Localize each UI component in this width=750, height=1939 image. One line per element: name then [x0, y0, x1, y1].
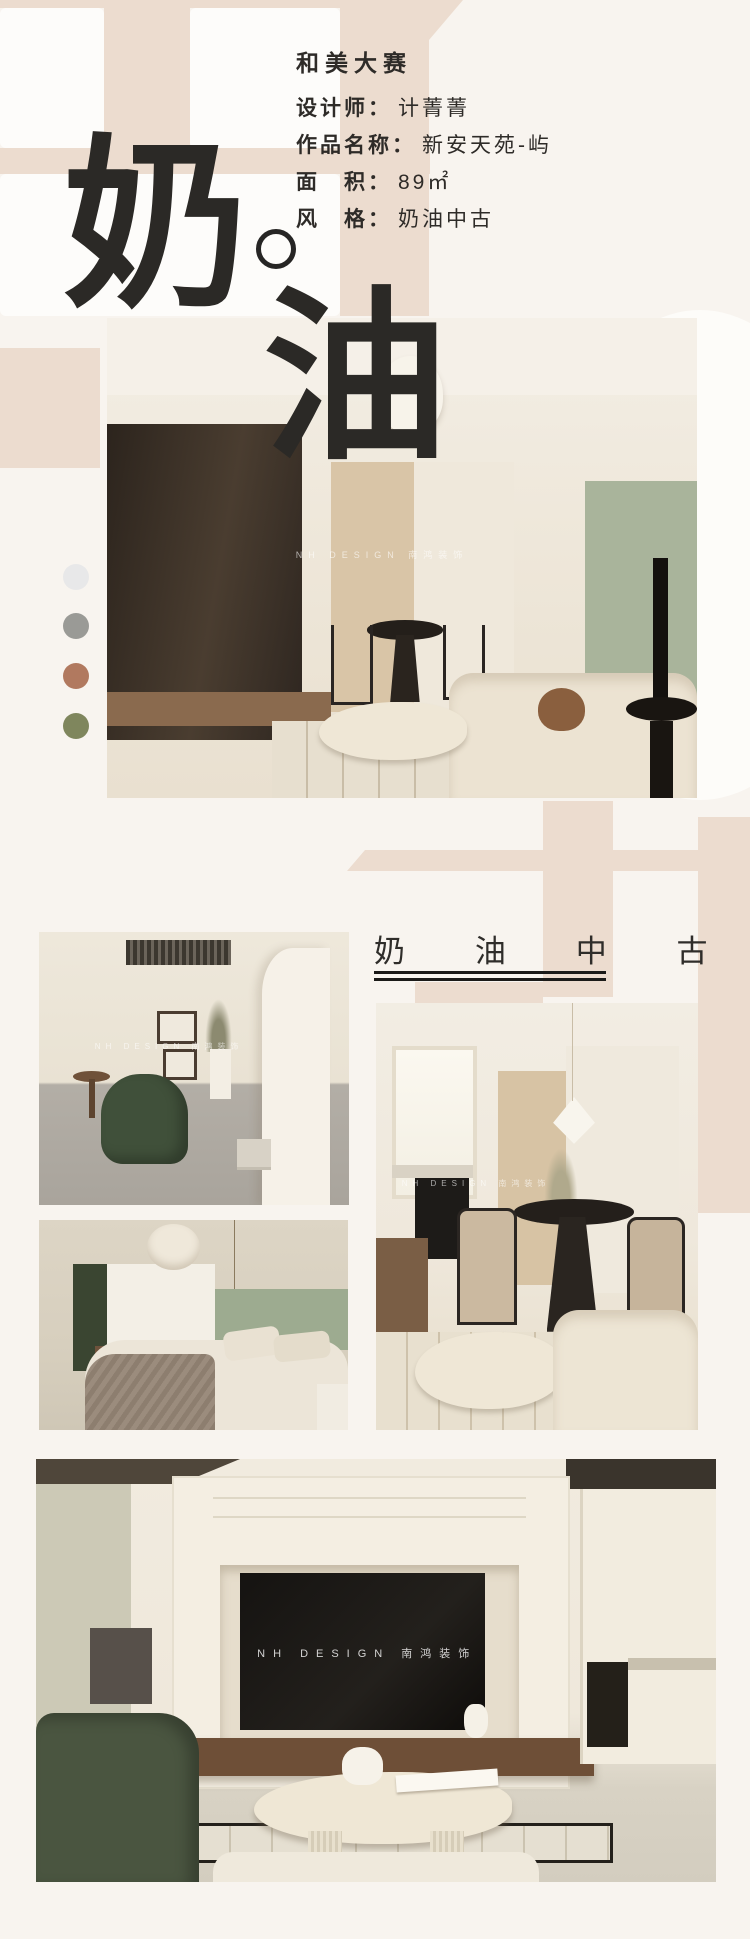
kitchen-counter [628, 1658, 716, 1671]
photo-watermark: NH DESIGN 南鸿装饰 [95, 1041, 244, 1052]
info-row-project: 作品名称： 新安天苑-屿 [296, 129, 552, 155]
photo-dining-area: NH DESIGN 南鸿装饰 [376, 1003, 698, 1430]
photo-watermark: NH DESIGN 南鸿装饰 [402, 1178, 551, 1189]
section-heading: 奶 油 中 古 [374, 926, 738, 971]
kitchen-oven [587, 1662, 628, 1747]
doorway-header [566, 1459, 716, 1489]
dining-chair [627, 1217, 685, 1317]
palette-swatch-terracotta [63, 663, 89, 689]
tv-watermark: NH DESIGN 南鸿装饰 [257, 1645, 477, 1661]
left-niche [90, 1628, 151, 1704]
bg-gu-right-strip [698, 817, 750, 1213]
palette-swatch-warm-gray [63, 613, 89, 639]
style-label: 风 格： [296, 203, 392, 233]
bg-left-block [0, 348, 100, 468]
table-leg [89, 1079, 95, 1117]
poster-page: 奶 油 和美大赛 设计师： 计菁菁 作品名称： 新安天苑-屿 面 积： 89㎡ … [0, 0, 750, 1939]
kidney-coffee-table [319, 702, 467, 760]
sage-green-wall [585, 481, 697, 697]
wall-frame [157, 1011, 197, 1044]
palette-swatch-light-gray [63, 564, 89, 590]
photo-hallway: NH DESIGN 南鸿装饰 [39, 932, 349, 1205]
photo-bedroom [39, 1220, 348, 1430]
hero-circle-mark [256, 229, 296, 269]
console-vase [464, 1704, 488, 1738]
heading-underline-top [374, 971, 606, 974]
dining-chair [457, 1208, 518, 1325]
wall-moulding [213, 1497, 526, 1518]
project-label: 作品名称： [296, 129, 416, 159]
green-lounge-chair [101, 1074, 188, 1164]
info-row-designer: 设计师： 计菁菁 [296, 92, 552, 118]
table-vase [342, 1747, 383, 1785]
kidney-coffee-table [415, 1332, 563, 1409]
walnut-console [172, 1738, 594, 1776]
floor-books [237, 1139, 271, 1166]
black-table-stem [650, 721, 674, 798]
info-row-area: 面 积： 89㎡ [296, 166, 552, 192]
tv-cabinet-wood [376, 1238, 428, 1332]
hero-title-top: 奶 [63, 138, 248, 314]
striped-throw [85, 1354, 215, 1430]
tufted-sofa [553, 1310, 698, 1430]
boucle-sofa-back [213, 1852, 539, 1882]
pendant-cord [572, 1003, 573, 1101]
style-value: 奶油中古 [398, 203, 494, 233]
table-flowers [543, 1144, 578, 1204]
competition-title: 和美大赛 [296, 44, 552, 78]
nightstand [317, 1384, 348, 1430]
curved-partition [262, 948, 330, 1205]
area-value: 89㎡ [398, 166, 451, 196]
green-sofa [36, 1713, 199, 1882]
designer-value: 计菁菁 [398, 92, 470, 122]
wall-planter [210, 1049, 232, 1098]
photo-tv-wall: NH DESIGN 南鸿装饰 [36, 1459, 716, 1882]
kitchen-counter [392, 1165, 473, 1178]
tv-screen: NH DESIGN 南鸿装饰 [240, 1573, 485, 1730]
info-row-style: 风 格： 奶油中古 [296, 203, 552, 229]
pumpkin-cushion [538, 688, 585, 731]
project-value: 新安天苑-屿 [422, 129, 552, 159]
dining-chair [331, 625, 372, 705]
heading-underline-bottom [374, 978, 606, 981]
wall-frame [163, 1049, 197, 1080]
project-info: 和美大赛 设计师： 计菁菁 作品名称： 新安天苑-屿 面 积： 89㎡ 风 格：… [296, 44, 552, 240]
ceiling-vent [126, 940, 231, 965]
hero-title-bottom: 油 [263, 290, 448, 466]
black-lamp-stem [653, 558, 668, 712]
palette-swatch-olive [63, 713, 89, 739]
lantern-pendant [147, 1224, 200, 1270]
photo-watermark: NH DESIGN 南鸿装饰 [296, 548, 469, 561]
bg-corner-tip [429, 0, 463, 40]
designer-label: 设计师： [296, 92, 392, 122]
area-label: 面 积： [296, 166, 392, 196]
